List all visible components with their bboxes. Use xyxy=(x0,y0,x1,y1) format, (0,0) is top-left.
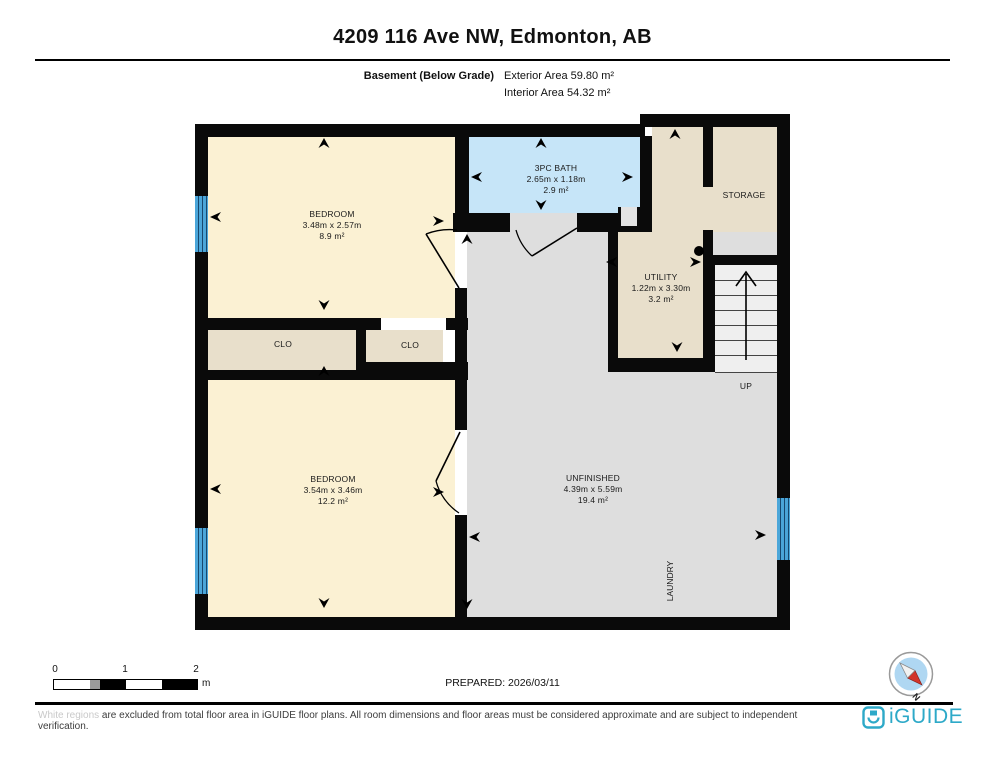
iguide-logo-text: iGUIDE xyxy=(889,705,963,729)
dim-arrow-left xyxy=(471,172,483,182)
dim-arrow-up xyxy=(318,366,330,376)
dim-arrow-left xyxy=(606,257,618,267)
label-utility: UTILITY 1.22m x 3.30m 3.2 m² xyxy=(601,272,721,306)
dim-arrow-down xyxy=(461,599,473,609)
dim-arrow-right xyxy=(754,530,766,540)
compass-icon xyxy=(888,651,934,697)
floor-label: Basement (Below Grade) xyxy=(0,70,494,82)
prepared-date: PREPARED: 2026/03/11 xyxy=(0,677,985,689)
dim-arrow-down xyxy=(318,598,330,608)
label-unfinished: UNFINISHED 4.39m x 5.59m 19.4 m² xyxy=(533,473,653,507)
label-bedroom2: BEDROOM 3.54m x 3.46m 12.2 m² xyxy=(273,474,393,508)
scale-tick-2: 2 xyxy=(189,664,203,675)
wall-bath-right xyxy=(640,136,652,232)
label-laundry: LAUNDRY xyxy=(665,551,675,611)
title-divider xyxy=(35,59,950,61)
label-closet-left: CLO xyxy=(243,339,323,350)
wall-utility-bottom xyxy=(608,358,712,372)
wall-bath-bottom-left xyxy=(453,213,510,232)
dim-arrow-up xyxy=(461,234,473,244)
stair-tread xyxy=(715,340,777,341)
floor-drain-dot xyxy=(694,246,704,256)
bath-door-opening xyxy=(510,213,577,232)
closet-right-opening xyxy=(381,318,446,330)
wall-corridor-storage-upper xyxy=(703,127,713,187)
wall-bath-bottom-right xyxy=(577,213,618,232)
iguide-logo-icon xyxy=(862,706,885,729)
dim-arrow-up xyxy=(318,138,330,148)
window-bedroom1 xyxy=(195,196,208,252)
label-closet-right: CLO xyxy=(380,340,440,351)
wall-closets-bottom xyxy=(195,370,468,380)
wall-main-vertical-a xyxy=(455,288,467,430)
window-bedroom2 xyxy=(195,528,208,594)
footer-divider xyxy=(35,702,953,705)
wall-storage-bottom xyxy=(703,255,777,265)
label-bedroom1: BEDROOM 3.48m x 2.57m 8.9 m² xyxy=(272,209,392,243)
disclaimer-text: White regions are excluded from total fl… xyxy=(38,710,838,732)
dim-arrow-down xyxy=(671,342,683,352)
dim-arrow-left xyxy=(210,212,222,222)
disclaimer-light-part: White regions xyxy=(38,710,99,721)
dim-arrow-up xyxy=(669,129,681,139)
label-storage: STORAGE xyxy=(704,190,784,201)
disclaimer-main-part: are excluded from total floor area in iG… xyxy=(38,710,797,732)
scale-tick-0: 0 xyxy=(48,664,62,675)
dim-arrow-right xyxy=(621,172,633,182)
exterior-area-value: Exterior Area 59.80 m² xyxy=(504,70,614,82)
wall-closet-divider xyxy=(356,330,366,370)
dim-arrow-down xyxy=(318,300,330,310)
dim-arrow-up xyxy=(535,138,547,148)
wall-bed1-bath xyxy=(455,136,469,213)
dim-arrow-right xyxy=(689,257,701,267)
stairs xyxy=(715,265,777,373)
dim-arrow-down xyxy=(535,200,547,210)
label-bath: 3PC BATH 2.65m x 1.18m 2.9 m² xyxy=(496,163,616,197)
stair-tread xyxy=(715,325,777,326)
dim-arrow-left xyxy=(210,484,222,494)
bath-notch xyxy=(621,207,637,226)
stair-tread xyxy=(715,310,777,311)
dim-arrow-right xyxy=(432,216,444,226)
floorplan-canvas: BEDROOM 3.48m x 2.57m 8.9 m² 3PC BATH 2.… xyxy=(195,114,790,630)
floorplan-page: 4209 116 Ave NW, Edmonton, AB Basement (… xyxy=(0,0,985,763)
wall-top-right xyxy=(640,114,790,127)
stair-tread xyxy=(715,280,777,281)
iguide-logo: iGUIDE xyxy=(862,705,963,729)
scale-tick-1: 1 xyxy=(118,664,132,675)
room-corridor xyxy=(652,127,703,232)
wall-top-left xyxy=(195,124,645,137)
stair-tread xyxy=(715,295,777,296)
dim-arrow-right xyxy=(432,487,444,497)
page-title: 4209 116 Ave NW, Edmonton, AB xyxy=(0,26,985,49)
window-laundry xyxy=(777,498,790,560)
wall-bottom xyxy=(195,617,790,630)
interior-area-value: Interior Area 54.32 m² xyxy=(504,87,610,99)
label-up: UP xyxy=(715,381,777,392)
dim-arrow-left xyxy=(469,532,481,542)
stair-tread xyxy=(715,355,777,356)
